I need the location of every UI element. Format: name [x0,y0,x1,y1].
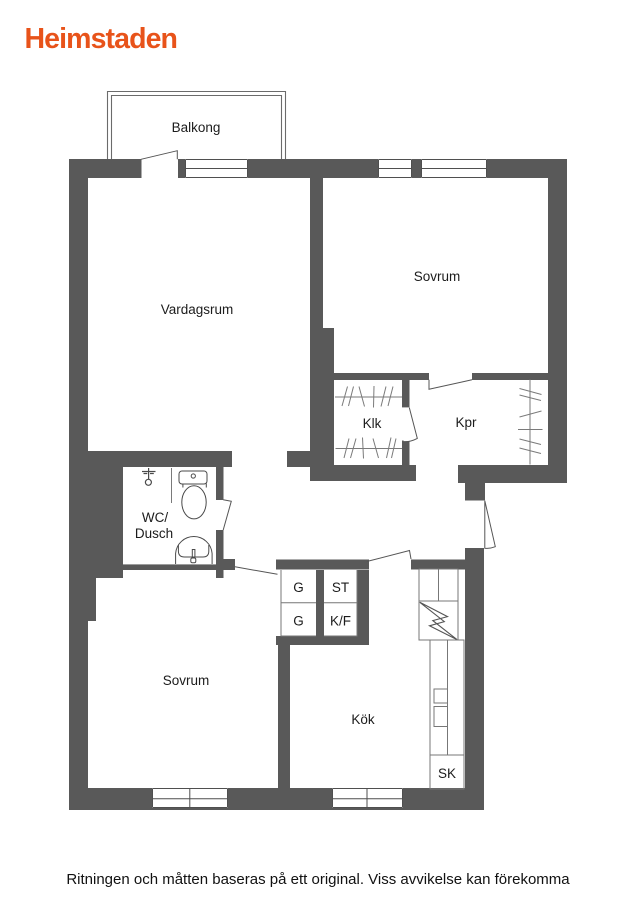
svg-text:G: G [293,580,304,595]
svg-text:ST: ST [332,580,349,595]
svg-text:Heimstaden: Heimstaden [25,23,178,55]
svg-text:K/F: K/F [330,614,351,629]
svg-text:Balkong: Balkong [172,120,221,135]
svg-text:SK: SK [438,766,456,781]
svg-text:Klk: Klk [363,416,382,431]
svg-text:Ritningen och måtten baseras p: Ritningen och måtten baseras på ett orig… [66,871,570,888]
svg-text:Vardagsrum: Vardagsrum [161,302,234,317]
svg-text:Kpr: Kpr [455,415,477,430]
svg-text:Sovrum: Sovrum [414,269,461,284]
svg-text:Kök: Kök [351,712,375,727]
svg-text:G: G [293,614,304,629]
svg-text:Dusch: Dusch [135,526,173,541]
svg-text:WC/: WC/ [142,510,168,525]
svg-text:Sovrum: Sovrum [163,673,210,688]
